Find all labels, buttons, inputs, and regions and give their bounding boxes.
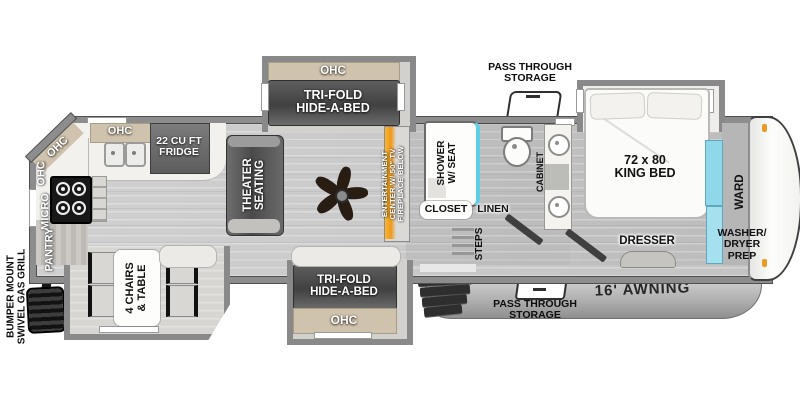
grill-label: BUMPER MOUNT SWIVEL GAS GRILL	[4, 241, 31, 353]
bath-sink	[548, 196, 570, 218]
dinette-table-label: 4 CHAIRS & TABLE	[125, 253, 149, 323]
shower-label: SHOWER W/ SEAT	[436, 134, 460, 192]
steps-label: STEPS	[474, 222, 486, 266]
refrigerator-label: 22 CU FT FRIDGE	[148, 128, 210, 166]
dresser	[620, 251, 676, 268]
gas-grill-icon	[26, 286, 66, 334]
ward-mirror	[705, 140, 723, 206]
pass-through-door-top-handle	[526, 95, 540, 98]
bath-sink	[548, 134, 570, 156]
interior-steps	[452, 228, 474, 262]
trifold-sofa-bottom-label: TRI-FOLD HIDE-A-BED	[291, 268, 397, 304]
theater-seating-label: THEATER SEATING	[241, 146, 267, 224]
oven-panel	[92, 176, 107, 222]
rv-floorplan: 16' AWNING PASS THROUGH STORAGE PASS THR…	[0, 0, 800, 400]
window	[398, 84, 404, 110]
pass-through-door-bottom-handle	[533, 288, 546, 291]
closet-label: CLOSET	[420, 201, 472, 219]
kitchen-sink	[104, 142, 125, 167]
sink-drain	[555, 141, 559, 145]
sink-drain	[111, 151, 115, 155]
toilet-flush	[512, 144, 517, 149]
slide-bottom-ohc-label: OHC	[293, 308, 395, 332]
entry-door-gap	[420, 264, 476, 272]
stove	[50, 176, 92, 224]
washer-dryer-label: WASHER/ DRYER PREP	[702, 226, 782, 264]
pass-through-bottom-label: PASS THROUGH STORAGE	[487, 298, 583, 322]
marker-light	[762, 124, 767, 132]
sink-drain	[555, 203, 559, 207]
window	[315, 333, 371, 338]
kitchen-ohc-top-label: OHC	[90, 123, 150, 141]
vanity-mid	[545, 164, 569, 190]
window	[262, 84, 268, 110]
toilet-bowl	[503, 137, 531, 167]
dinette-chair	[166, 285, 198, 317]
bench	[160, 246, 216, 267]
cabinet-label: CABINET	[535, 143, 547, 201]
window	[100, 327, 158, 332]
bench	[292, 247, 400, 266]
trifold-sofa-top-label: TRI-FOLD HIDE-A-BED	[268, 82, 398, 122]
window	[577, 90, 583, 112]
ceiling-fan-icon	[312, 166, 368, 222]
kitchen-sink	[125, 142, 146, 167]
entertainment-label: ENTERTAINMENT CENTER W/ 50" TV FIREPLACE…	[379, 131, 407, 237]
pass-through-top-label: PASS THROUGH STORAGE	[480, 61, 580, 85]
pillow	[647, 92, 703, 120]
slide-top-ohc-label: OHC	[268, 62, 398, 80]
pantry-label: PANTRY	[44, 221, 57, 279]
ward-label: WARD	[733, 163, 747, 221]
dresser-label: DRESSER	[616, 234, 678, 248]
sink-drain	[132, 151, 136, 155]
king-bed-label: 72 x 80 KING BED	[595, 150, 695, 184]
pillow	[590, 92, 646, 120]
